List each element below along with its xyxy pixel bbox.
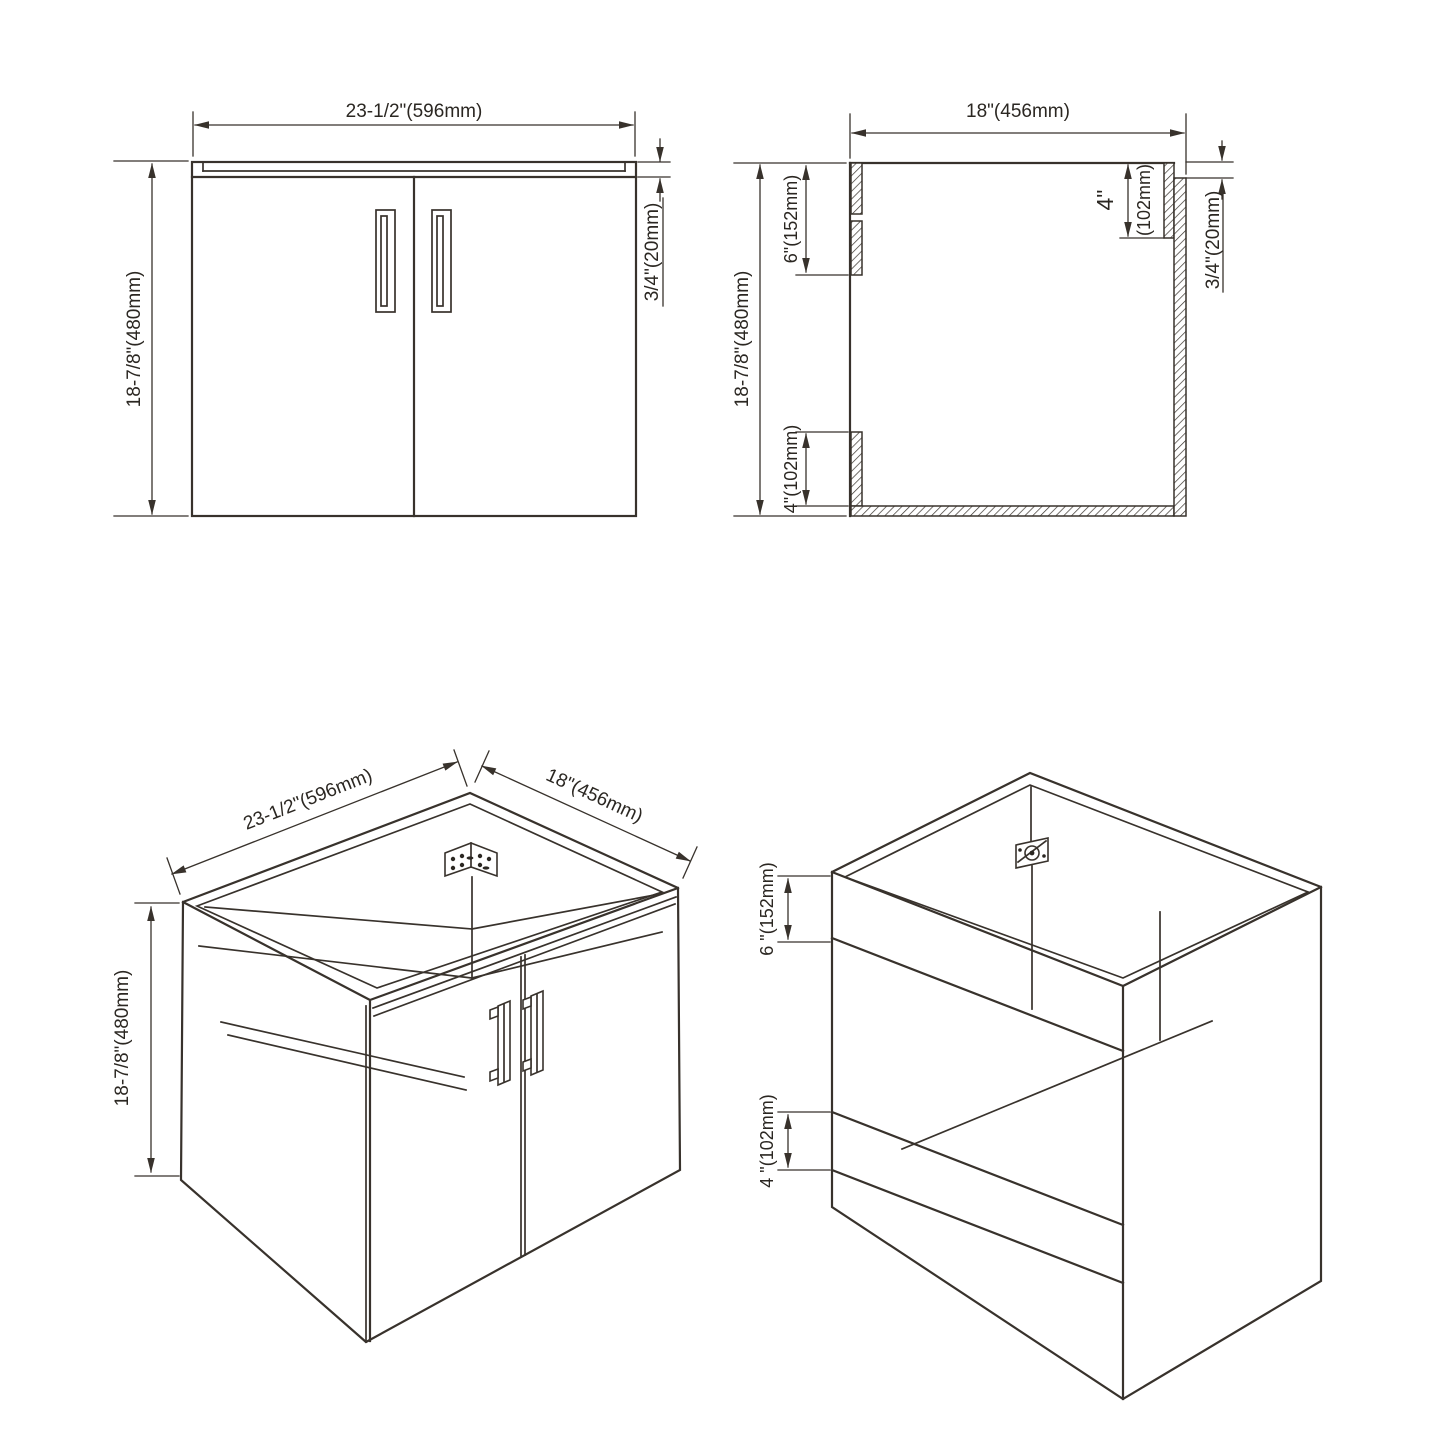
- cabinet-outline: [181, 793, 680, 1342]
- handle-foot-bottom: [523, 1059, 531, 1071]
- cam-lock-fitting-icon: [1016, 838, 1048, 868]
- thickness-dimension-label: 3/4"(20mm): [642, 203, 663, 302]
- screw-slot: [483, 866, 490, 869]
- height-dimension-label: 18-7/8"(480mm): [124, 271, 145, 408]
- handle-outline: [376, 210, 395, 312]
- front-elevation-view: 23-1/2"(596mm) 18-7/8"(480mm) 3/4"(20mm): [114, 101, 670, 516]
- screw-hole: [1042, 854, 1046, 858]
- cabinet-outline: [832, 773, 1321, 1399]
- back-rail-mm-label: (102mm): [1134, 164, 1154, 236]
- handle-foot-bottom: [490, 1069, 498, 1081]
- cabinet-dimension-drawing: 23-1/2"(596mm) 18-7/8"(480mm) 3/4"(20mm)…: [0, 0, 1445, 1445]
- top-front-right-edge: [1123, 887, 1321, 986]
- screw-hole: [478, 854, 482, 858]
- fitting-center-screw: [1030, 851, 1035, 856]
- extension-line: [454, 750, 467, 786]
- left-door-handle: [376, 210, 395, 312]
- back-panel-section: [1174, 178, 1186, 516]
- front-bottom-rail-label: 4"(102mm): [781, 425, 801, 513]
- height-dimension-label: 18-7/8"(480mm): [112, 970, 133, 1107]
- handle-inner: [437, 216, 443, 306]
- front-top-rail-section-lower: [851, 221, 862, 275]
- screw-hole: [1018, 848, 1022, 852]
- screw-hole: [451, 866, 455, 870]
- top-rail-bottom-edge: [832, 938, 1123, 1051]
- top-opening-inner-frame: [845, 785, 1308, 978]
- corner-bracket-icon: [445, 843, 497, 876]
- top-rail-label: 6 "(152mm): [757, 862, 777, 955]
- screw-hole: [487, 857, 491, 861]
- interior-shelf-edge: [902, 1021, 1212, 1149]
- top-front-left-edge: [183, 902, 370, 1000]
- screw-slot: [467, 856, 474, 859]
- interior-front-rail-edge-1: [221, 1022, 464, 1077]
- interior-rail-top-left: [205, 907, 472, 929]
- width-dimension-line: [172, 762, 457, 874]
- isometric-back-view: 6 "(152mm) 4 "(102mm): [757, 773, 1321, 1399]
- screw-hole: [460, 854, 464, 858]
- extension-line: [683, 847, 697, 878]
- side-section-view: 18"(456mm) 18-7/8"(480mm) 6"(152mm) 4"(1…: [732, 101, 1233, 516]
- right-door-handle: [523, 991, 543, 1075]
- back-rail-inches-label: 4": [1092, 190, 1118, 211]
- front-bottom-rail-section: [851, 432, 862, 506]
- bottom-rail-label: 4 "(102mm): [757, 1094, 777, 1187]
- handle-foot-top: [523, 997, 531, 1009]
- screw-hole: [478, 863, 482, 867]
- interior-front-rail-edge-2: [228, 1035, 466, 1090]
- width-dimension-label: 23-1/2"(596mm): [346, 101, 483, 122]
- depth-dimension-label: 18"(456mm): [966, 101, 1070, 122]
- screw-hole: [460, 863, 464, 867]
- handle-outline: [432, 210, 451, 312]
- width-dimension-label: 23-1/2"(596mm): [241, 765, 376, 835]
- handle-foot-top: [490, 1007, 498, 1019]
- back-rail-section: [1164, 163, 1174, 238]
- isometric-front-view: 23-1/2"(596mm) 18"(456mm) 18-7/8"(480mm): [112, 750, 697, 1342]
- interior-rail-bottom-right: [472, 932, 662, 978]
- bottom-rail-top-edge: [832, 1112, 1123, 1225]
- extension-line: [167, 858, 180, 894]
- front-top-rail-section-upper: [851, 163, 862, 214]
- front-top-rail-label: 6"(152mm): [781, 175, 801, 263]
- top-opening-inner-frame: [197, 804, 662, 988]
- panel-thickness-label: 3/4"(20mm): [1203, 191, 1224, 290]
- right-door-handle: [432, 210, 451, 312]
- left-door-handle: [490, 1001, 510, 1085]
- height-dimension-label: 18-7/8"(480mm): [732, 271, 753, 408]
- top-front-right-edge: [370, 888, 678, 1000]
- interior-rail-bottom-left: [199, 946, 472, 978]
- bottom-panel-section: [851, 506, 1174, 516]
- screw-hole: [451, 857, 455, 861]
- handle-inner: [381, 216, 387, 306]
- drawing-sheet: 23-1/2"(596mm) 18-7/8"(480mm) 3/4"(20mm)…: [0, 0, 1445, 1445]
- top-front-left-edge: [832, 872, 1123, 986]
- bottom-rail-bottom-edge: [832, 1170, 1123, 1283]
